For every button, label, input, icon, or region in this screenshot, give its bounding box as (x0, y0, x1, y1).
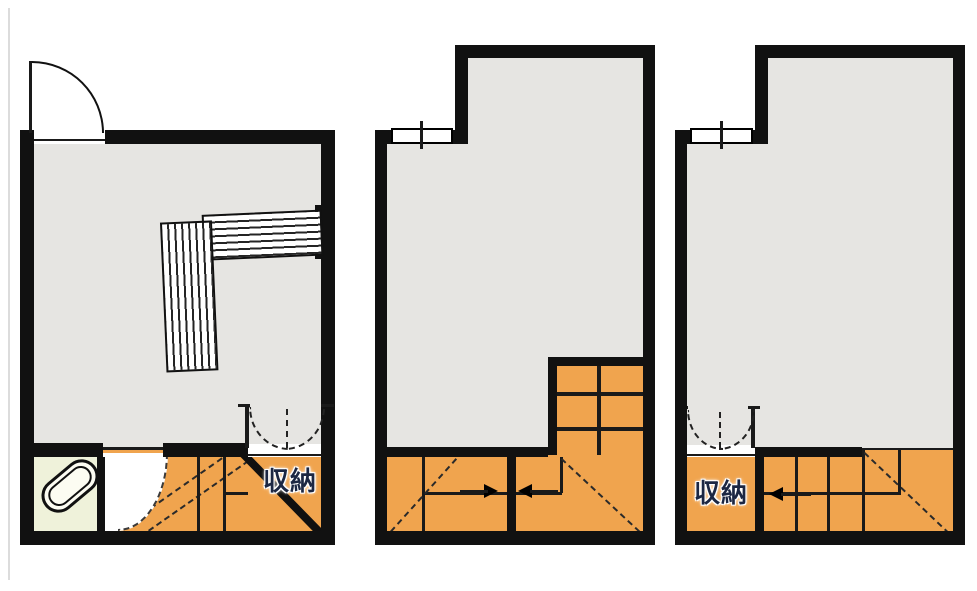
plan3-step-divider-3 (862, 450, 865, 531)
plan3-window-center-tick (720, 121, 723, 149)
plan3-wall-top (755, 45, 965, 58)
plan3-closet-door-cap-right (748, 406, 760, 409)
plan3-room-floor (687, 144, 953, 455)
plan3-wall-notch-b (753, 130, 767, 144)
plan3-arrow-left-shaft (781, 493, 811, 496)
plan3-storage-label: 収納 (683, 481, 759, 507)
plan1-storage-label: 収納 (250, 469, 330, 495)
plan3-wall-right (953, 45, 965, 545)
plan3-stair-top-line (862, 448, 953, 450)
plan3-wall-bottom (675, 531, 965, 545)
floor-plan-image: 収納 (0, 0, 977, 591)
plan3-closet-door-meeting-line (719, 412, 721, 448)
plan3-room-floor-upper (768, 58, 953, 148)
plan3-closet-threshold-line (683, 454, 755, 456)
plan3-stair-wall-top (764, 447, 862, 457)
plan3-stair-floor (764, 450, 953, 531)
floor-plan-3: 収納 (0, 0, 977, 591)
